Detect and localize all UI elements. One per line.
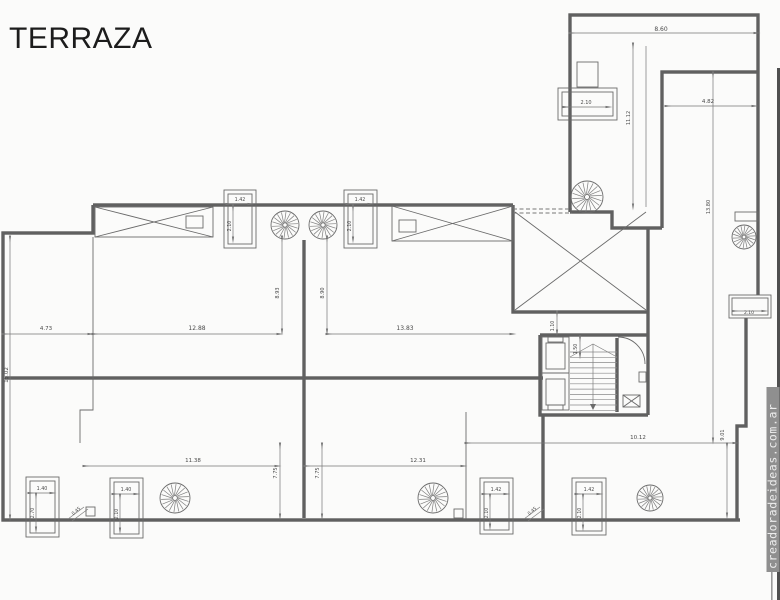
watermark-tail-line (771, 572, 773, 600)
dimension-label: 0.45 (527, 506, 539, 517)
dimension-label: 2.70 (30, 508, 36, 519)
dimension-label: 2.10 (347, 221, 353, 232)
dimension-label: 13.83 (396, 325, 413, 332)
extractor-fan-icon (418, 483, 448, 513)
door-swing-arc (618, 337, 645, 364)
dimension-label: 2.10 (580, 100, 591, 106)
dimension-labels: 8.604.8211.1213.802.101.422.101.422.108.… (4, 26, 754, 519)
dimension-label: 1.50 (573, 344, 579, 355)
dimension-label: 2.10 (484, 508, 490, 519)
extractor-fan-icon (309, 211, 337, 239)
dimension-label: 12.31 (410, 458, 426, 464)
chimney-shaft-bottom-4 (572, 478, 606, 535)
extractor-fan-icon (271, 211, 299, 239)
stair-treads (570, 352, 617, 410)
dimension-label: 2.10 (227, 221, 233, 232)
core-right-room (623, 372, 646, 407)
dimension-label: 15.02 (4, 367, 10, 383)
elevator-shafts (542, 337, 569, 410)
dimension-label: 1.42 (491, 487, 502, 493)
chimney-shaft-bottom-1 (26, 477, 59, 537)
dimension-label: 2.10 (744, 310, 754, 316)
dimension-label: 0.45 (71, 506, 83, 517)
extractor-fan-icon (160, 483, 190, 513)
floor-plan-canvas: 8.604.8211.1213.802.101.422.101.422.108.… (0, 0, 780, 600)
dimension-label: 1.42 (355, 197, 366, 203)
dimension-label: 1.40 (37, 486, 48, 492)
dimension-label: 7.75 (315, 467, 321, 478)
dimension-lines (5, 33, 765, 531)
stair-direction-arrow (590, 404, 596, 410)
dimension-label: 1.42 (584, 487, 595, 493)
spiral-fans (160, 181, 756, 513)
extractor-fan-icon (637, 485, 663, 511)
skylight-crossed-1 (95, 207, 213, 237)
dimension-label: 7.75 (273, 467, 279, 478)
dimension-label: 8.93 (275, 287, 281, 298)
dashed-hidden-line (513, 209, 572, 213)
dimension-label: 13.80 (706, 200, 712, 214)
dimension-label: 8.90 (320, 287, 326, 298)
planter-top (558, 62, 617, 120)
extractor-fan-icon (571, 181, 603, 213)
dimension-label: 11.12 (626, 111, 632, 125)
dimension-label: 4.82 (702, 99, 714, 105)
dimension-label: 10.12 (630, 435, 646, 441)
bracket-right (735, 212, 758, 221)
dimension-label: 11.38 (185, 458, 201, 464)
extractor-fan-icon (732, 225, 756, 249)
dimension-label: 4.73 (40, 326, 53, 332)
dimension-label: 2.10 (114, 509, 120, 520)
dimension-label: 1.40 (121, 487, 132, 493)
patio-void-crossed (515, 212, 646, 310)
dimension-label: 12.88 (188, 325, 205, 332)
dimension-label: 1.42 (235, 197, 246, 203)
dimension-label: 2.10 (577, 508, 583, 519)
watermark-text: creadoradeideas.com.ar (766, 403, 780, 569)
dimension-label: 1.10 (550, 321, 556, 332)
skylight-crossed-2 (392, 206, 513, 241)
chimney-shaft-bottom-2 (110, 478, 143, 538)
walls (3, 15, 758, 520)
dimension-label: 9.01 (720, 429, 726, 440)
dimension-label: 8.60 (654, 26, 668, 33)
interior-edge-lines (80, 46, 646, 519)
chimney-shaft-bottom-3 (480, 478, 513, 534)
